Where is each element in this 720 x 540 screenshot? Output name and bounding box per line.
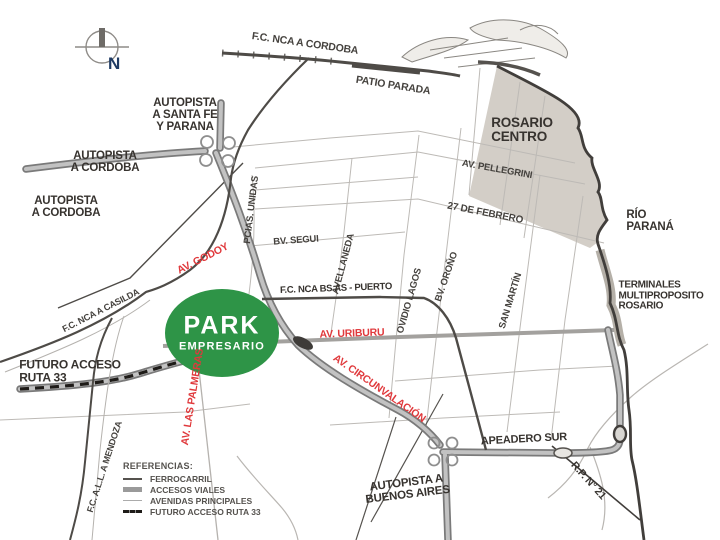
legend-title: REFERENCIAS: [123,461,261,471]
dashed-line-icon [123,510,142,513]
av-godoy-road [58,163,243,308]
park-title: PARK [179,314,265,339]
legend-row-futuro: FUTURO ACCESO RUTA 33 [123,508,261,515]
label-rio-parana: RÍO PARANÁ [626,209,673,233]
legend-row-ferrocarril: FERROCARRIL [123,475,261,482]
compass-icon: N [73,26,135,78]
legend-label: AVENIDAS PRINCIPALES [150,496,252,506]
label-av-uriburu: AV. URIBURU [319,327,384,340]
rp21-interchange [554,448,572,458]
roundabout [614,426,626,442]
label-rosario-centro: ROSARIO CENTRO [491,116,553,144]
rail-bsas-puerto [262,297,486,450]
label-autopista-santafe: AUTOPISTA A SANTA FE Y PARANA [152,97,217,133]
label-terminales: TERMINALES MULTIPROPOSITO ROSARIO [619,280,704,312]
parana-delta-islands [402,20,568,75]
compass-graphic [73,26,135,78]
compass-north-label: N [108,55,120,73]
park-subtitle: EMPRESARIO [179,342,265,353]
label-autopista-cordoba-2: AUTOPISTA A CORDOBA [32,195,101,219]
avenue-line-icon [123,500,142,501]
legend-label: ACCESOS VIALES [150,485,225,495]
legend-label: FUTURO ACCESO RUTA 33 [150,507,261,517]
highway-line-icon [123,487,142,492]
legend-row-accesos: ACCESOS VIALES [123,486,261,493]
map-canvas: N F.C. NCA A CORDOBA PATIO PARADA AUTOPI… [0,0,720,540]
rosario-centro-area [469,66,607,248]
railway-line-icon [123,478,142,480]
rail-patio-parada [352,65,420,72]
label-futuro-acceso: FUTURO ACCESO RUTA 33 [19,358,121,383]
park-marker: PARK EMPRESARIO [179,314,265,353]
legend-row-avenidas: AVENIDAS PRINCIPALES [123,497,261,504]
streams [237,344,708,540]
legend: REFERENCIAS: FERROCARRIL ACCESOS VIALES … [123,461,261,519]
label-autopista-cordoba-1: AUTOPISTA A CORDOBA [71,150,140,174]
legend-label: FERROCARRIL [150,474,212,484]
